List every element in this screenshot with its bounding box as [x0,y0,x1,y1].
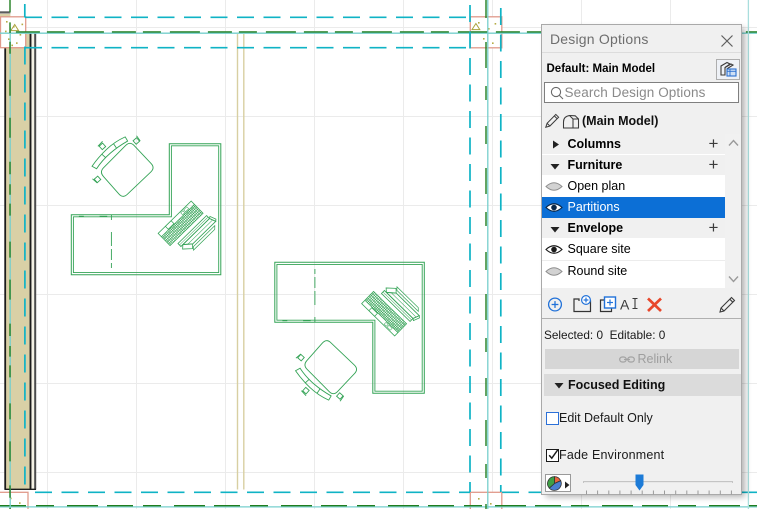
svg-text:A: A [620,297,630,313]
